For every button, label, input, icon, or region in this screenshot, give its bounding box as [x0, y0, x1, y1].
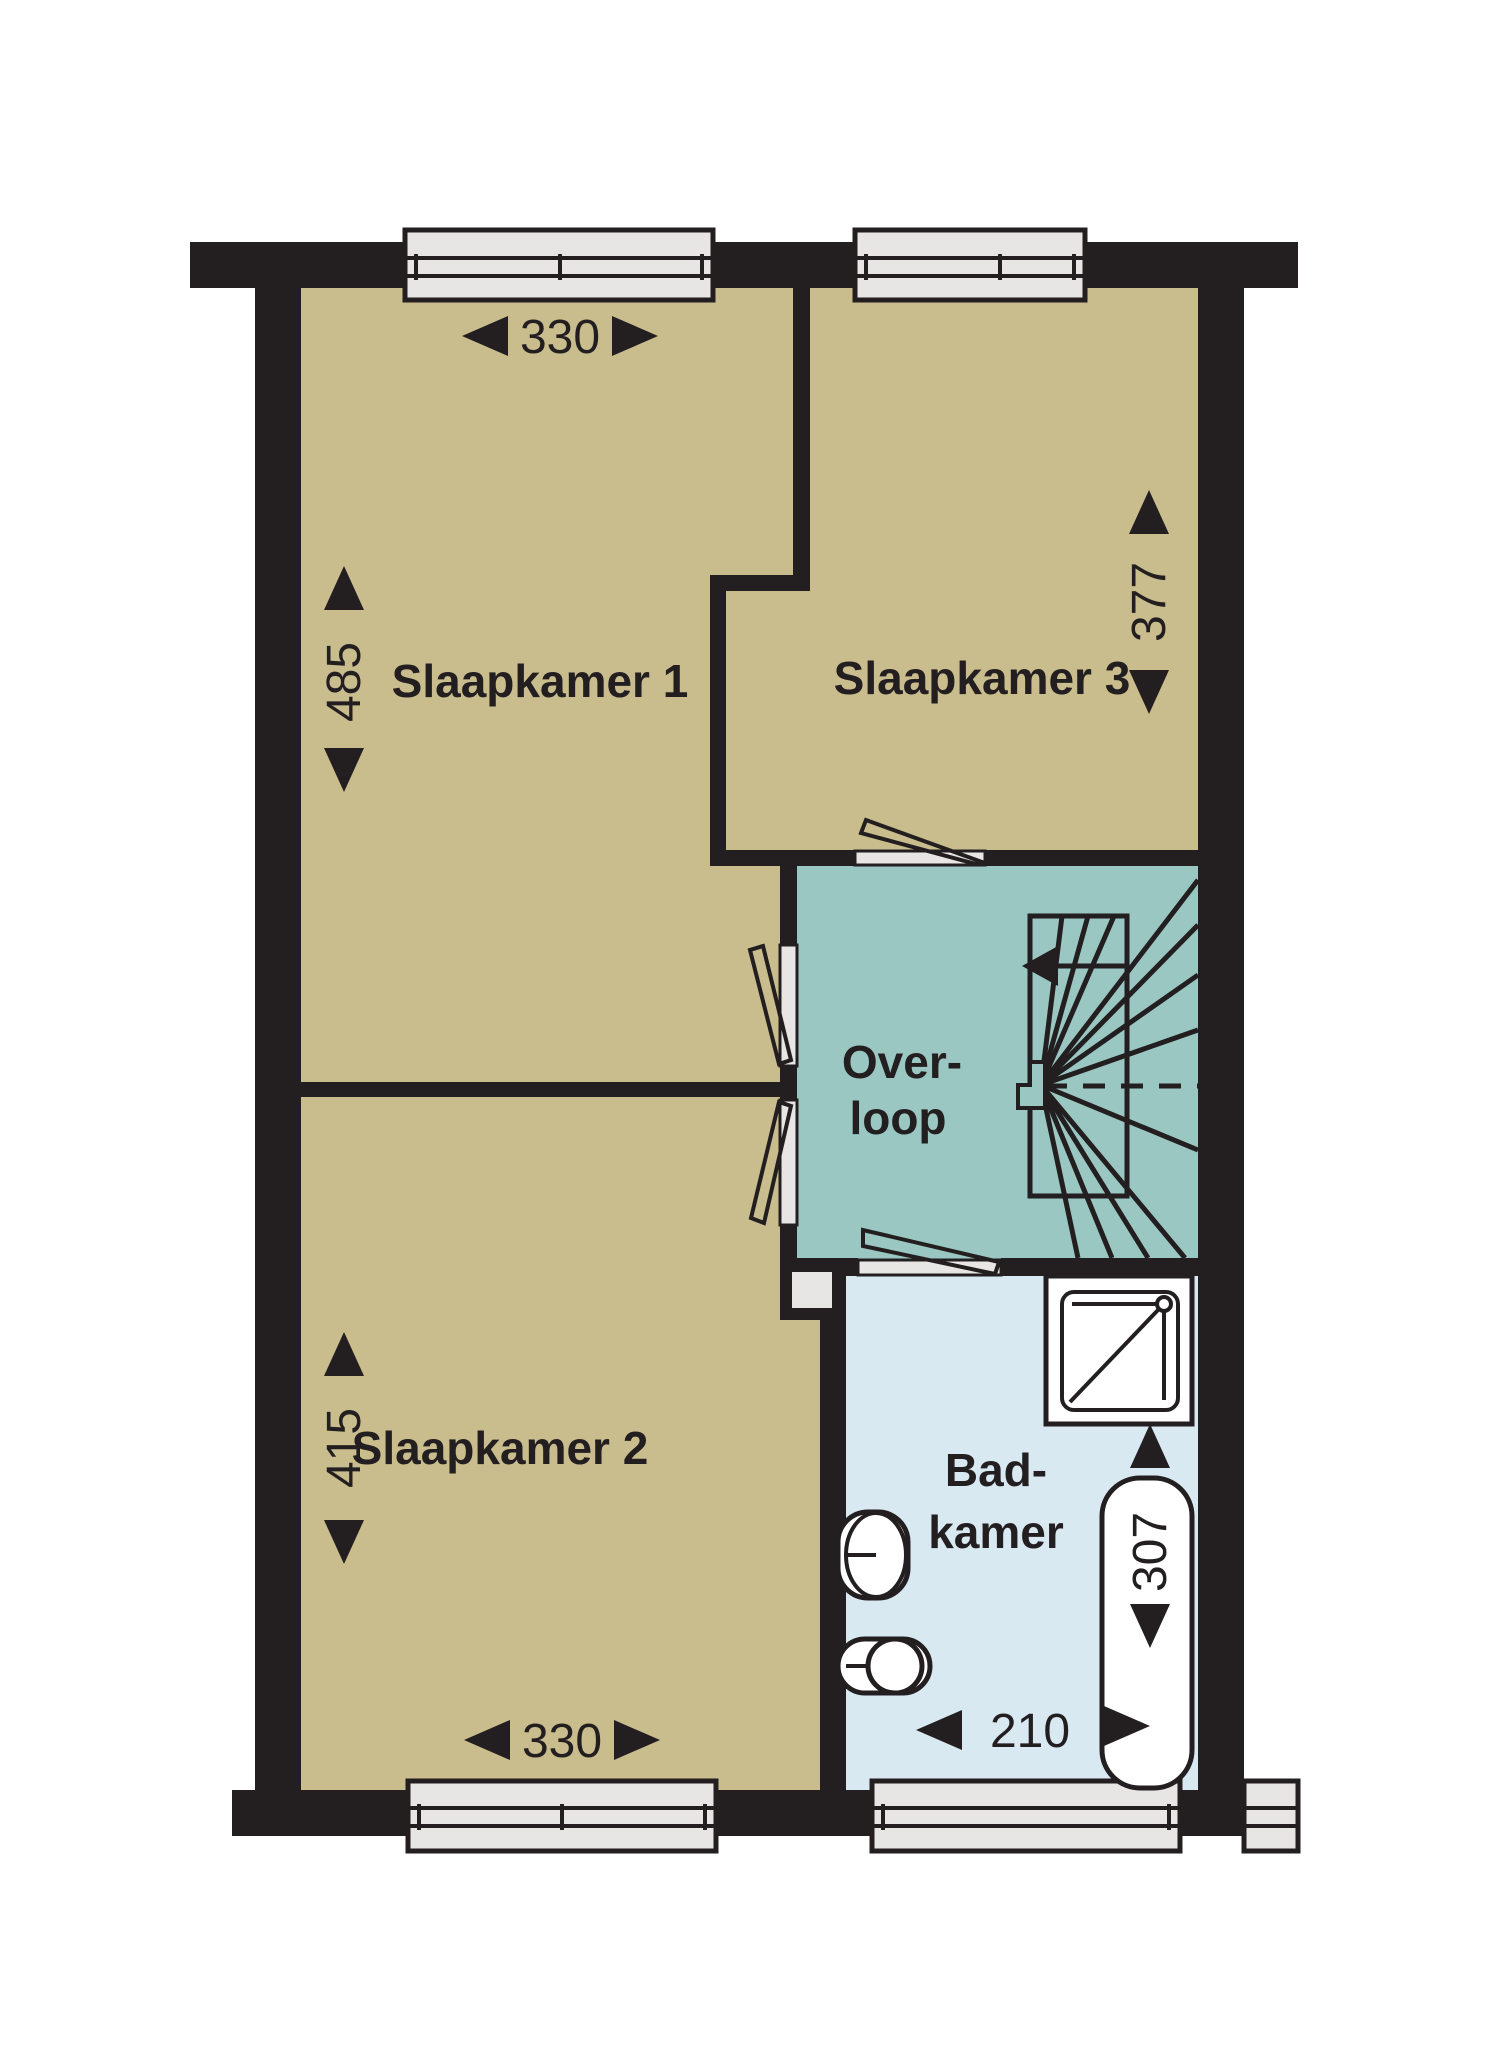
wall-sk1-sk2 — [301, 1082, 797, 1097]
svg-text:Over-: Over- — [842, 1036, 962, 1088]
wall-bottom-left — [232, 1790, 408, 1836]
wall-bottom-right — [1180, 1790, 1244, 1836]
wall-right — [1198, 288, 1244, 1790]
svg-text:loop: loop — [849, 1092, 946, 1144]
toilet — [838, 1639, 930, 1693]
dimension-value: 485 — [318, 642, 371, 722]
sink — [838, 1512, 908, 1598]
wall-overloop-badkamer-left — [846, 1258, 858, 1276]
wall-overloop-stub-top — [780, 866, 797, 945]
dimension-value: 210 — [990, 1705, 1070, 1758]
floorplan-drawing: Slaapkamer 1 330 485 Slaapkamer 3 377 Ov… — [0, 0, 1503, 2065]
dimension-value: 415 — [318, 1408, 371, 1488]
shower — [1046, 1276, 1192, 1424]
wall-sk3-bottom-left — [710, 850, 855, 866]
dimension-value: 330 — [522, 1715, 602, 1768]
room-label-slaapkamer-2: Slaapkamer 2 — [352, 1422, 649, 1474]
svg-text:kamer: kamer — [928, 1506, 1064, 1558]
wall-sk1-sk3-lower — [710, 575, 726, 866]
svg-text:Bad-: Bad- — [945, 1444, 1047, 1496]
dimension-value: 377 — [1123, 562, 1176, 642]
shower-head-icon — [1157, 1297, 1171, 1311]
shaft-interior — [792, 1272, 832, 1308]
room-label-slaapkamer-3: Slaapkamer 3 — [834, 652, 1131, 704]
wall-left — [255, 288, 301, 1790]
wall-overloop-badkamer-right — [1001, 1258, 1198, 1276]
window-slaapkamer-3 — [855, 230, 1085, 300]
dimension-value: 330 — [520, 311, 600, 364]
floorplan-page: Slaapkamer 1 330 485 Slaapkamer 3 377 Ov… — [0, 0, 1503, 2065]
window-party-wall-stub — [1244, 1781, 1298, 1851]
dimension-value: 307 — [1124, 1512, 1177, 1592]
wall-top-right — [1085, 242, 1298, 288]
window-slaapkamer-1 — [405, 230, 713, 300]
wall-sk1-sk3-upper — [793, 288, 810, 575]
window-badkamer — [872, 1781, 1180, 1851]
room-label-slaapkamer-1: Slaapkamer 1 — [392, 655, 689, 707]
window-slaapkamer-2 — [408, 1781, 716, 1851]
wall-bottom-middle — [716, 1790, 872, 1836]
wall-sk3-bottom-right — [985, 850, 1198, 866]
wall-top-middle — [713, 242, 855, 288]
wall-top-left — [190, 242, 405, 288]
wall-overloop-stub-bottom — [780, 1225, 797, 1258]
